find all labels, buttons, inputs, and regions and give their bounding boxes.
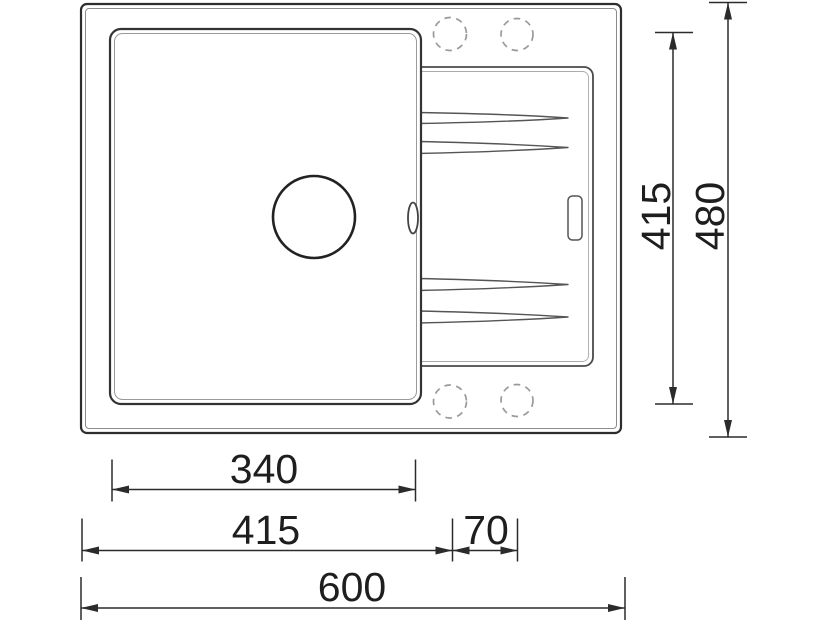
arrowhead-down-icon <box>724 420 732 437</box>
main-bowl-outline <box>110 29 421 404</box>
overflow-slot-icon <box>568 196 582 240</box>
dim-label-480: 480 <box>687 182 733 250</box>
arrowhead-up-icon <box>724 3 732 20</box>
dim-label-600: 600 <box>318 564 386 610</box>
arrowhead-up-icon <box>669 33 677 50</box>
drain-hole-icon <box>273 176 355 258</box>
arrowhead-right-icon <box>436 547 453 555</box>
dim-label-415-horizontal: 415 <box>232 507 300 553</box>
dimension-overall-depth: 480 <box>687 3 747 438</box>
dimension-bowl-width: 340 <box>112 446 416 502</box>
dimension-faucet-spacing: 70 <box>453 507 518 562</box>
arrowhead-right-icon <box>608 604 625 612</box>
main-bowl <box>110 29 421 404</box>
dimension-bowl-depth: 415 <box>633 33 693 405</box>
dimension-overall-width: 600 <box>81 564 625 620</box>
dim-label-70: 70 <box>463 507 509 553</box>
bowl-overflow-icon <box>408 203 418 234</box>
drawing-canvas: 340 415 70 600 415 <box>0 0 826 620</box>
dim-label-415-vertical: 415 <box>633 182 679 250</box>
sink-technical-drawing: 340 415 70 600 415 <box>0 0 826 620</box>
arrowhead-left-icon <box>81 604 98 612</box>
arrowhead-right-icon <box>399 486 416 494</box>
arrowhead-left-icon <box>82 547 99 555</box>
arrowhead-down-icon <box>669 387 677 404</box>
arrowhead-left-icon <box>112 486 129 494</box>
dim-label-340: 340 <box>230 446 298 492</box>
dimension-edge-to-faucet: 415 <box>82 507 453 562</box>
